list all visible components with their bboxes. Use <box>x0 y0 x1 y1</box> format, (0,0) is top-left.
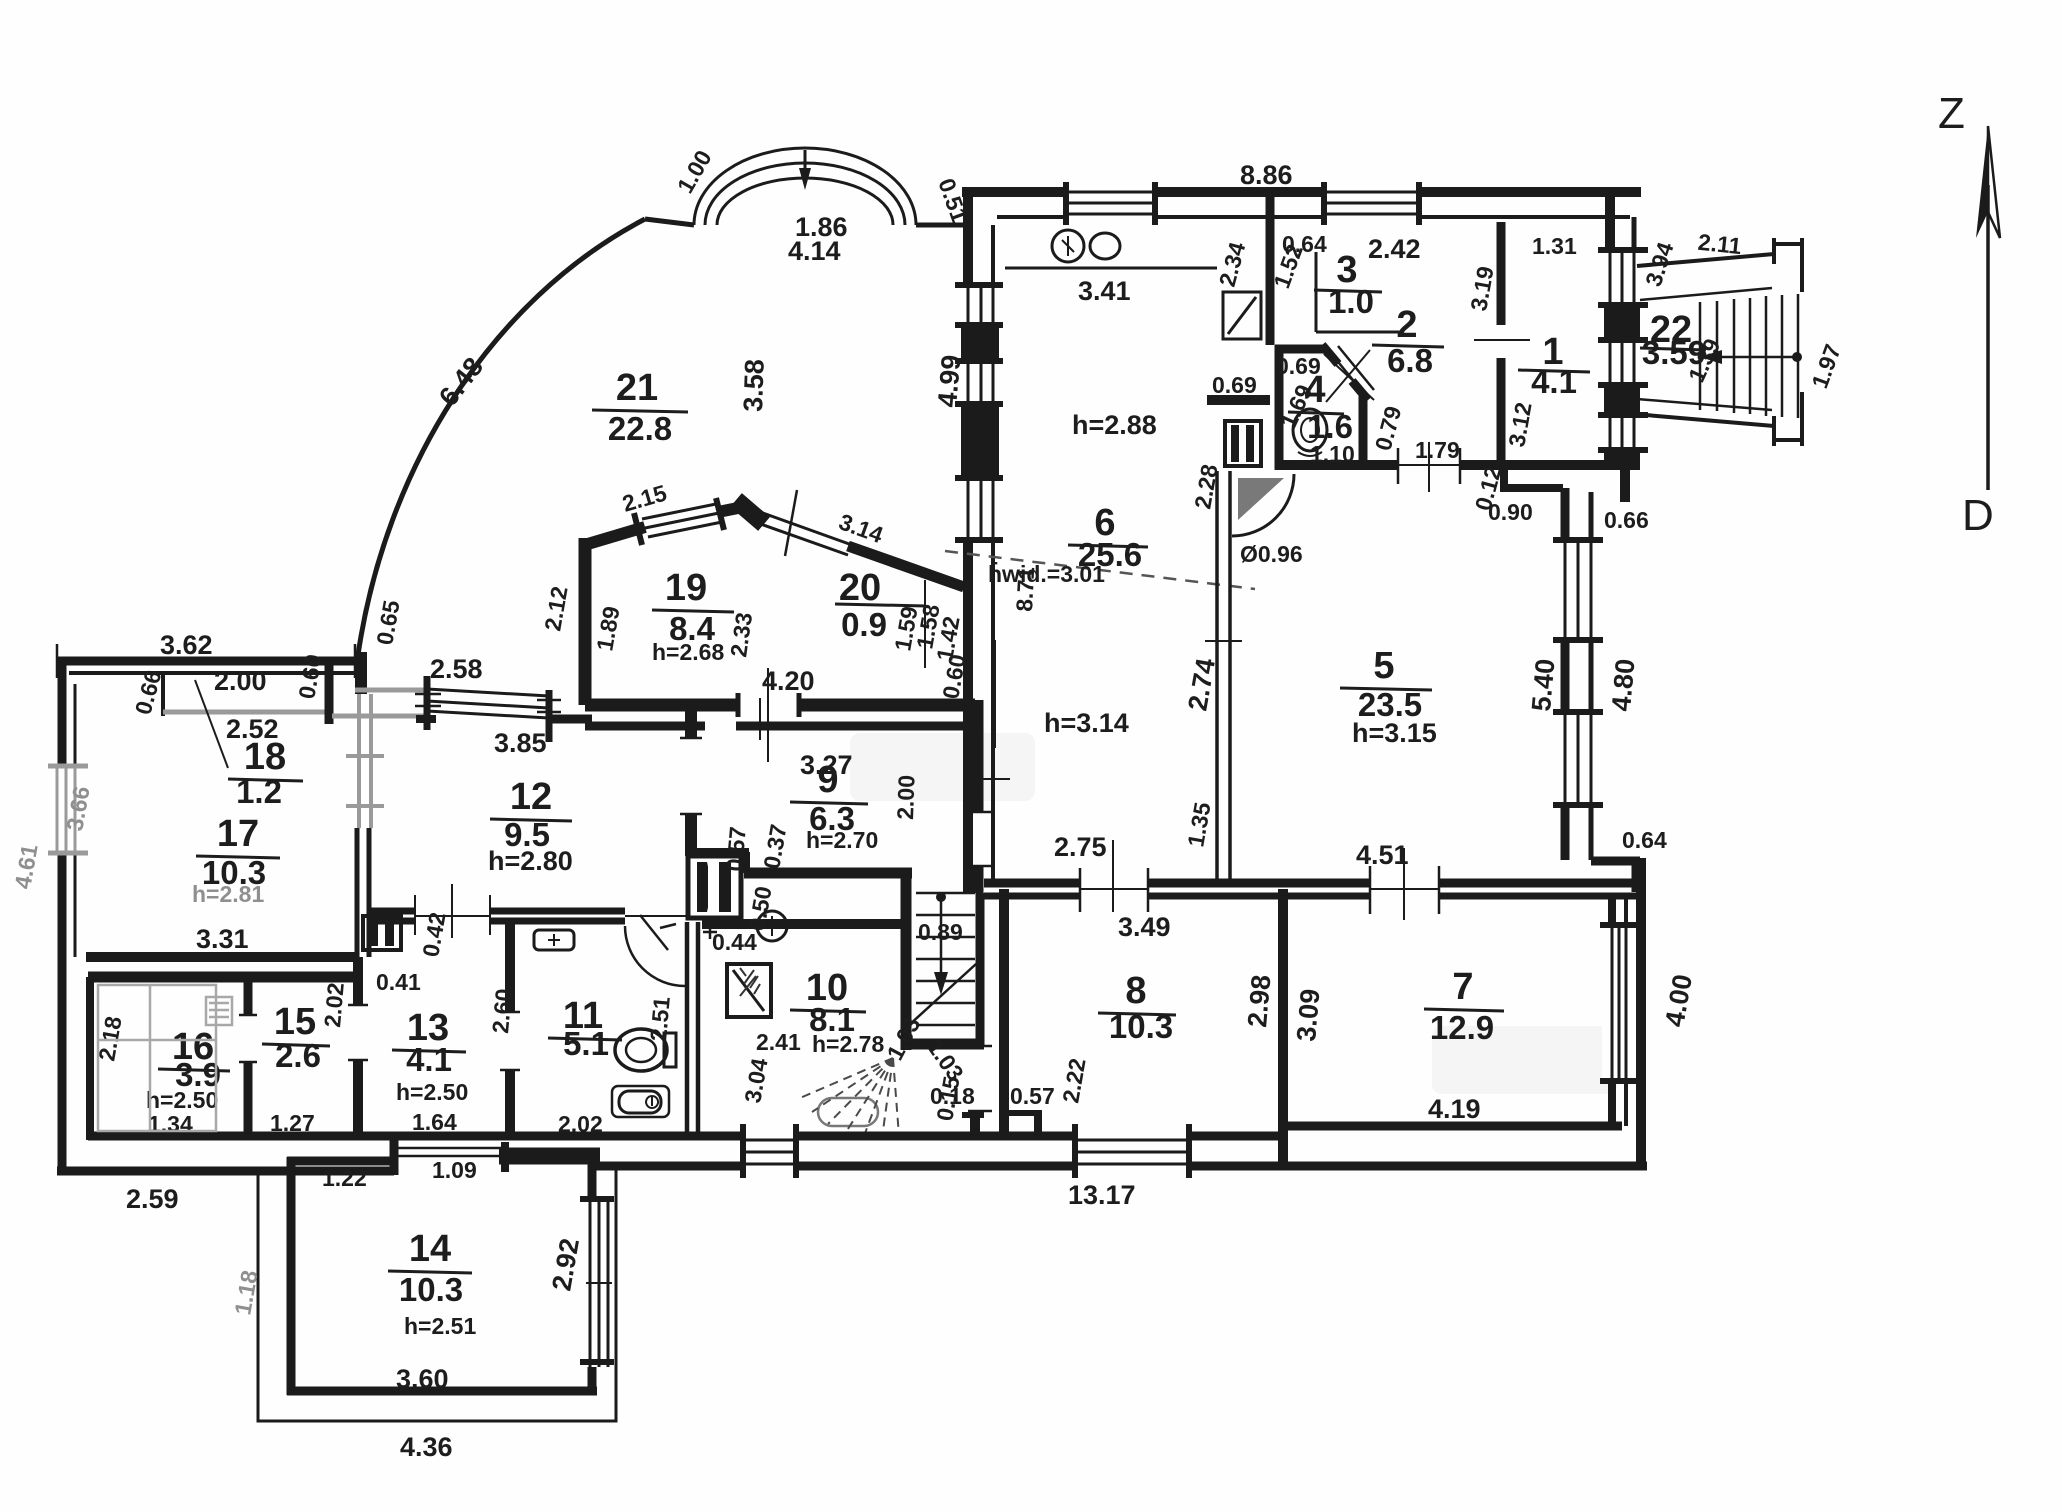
svg-text:0.44: 0.44 <box>712 929 757 955</box>
svg-text:h=2.51: h=2.51 <box>404 1313 476 1339</box>
svg-text:4.14: 4.14 <box>788 236 841 266</box>
svg-text:1.22: 1.22 <box>322 1165 367 1191</box>
svg-text:3.62: 3.62 <box>160 630 213 660</box>
svg-text:19: 19 <box>665 567 707 609</box>
svg-text:3.60: 3.60 <box>396 1364 449 1394</box>
svg-text:17: 17 <box>217 813 259 855</box>
svg-text:2.11: 2.11 <box>1697 229 1743 259</box>
svg-text:1.64: 1.64 <box>412 1109 457 1135</box>
svg-text:1.79: 1.79 <box>1415 437 1460 463</box>
svg-text:0.64: 0.64 <box>1622 827 1667 853</box>
svg-text:5.1: 5.1 <box>563 1025 609 1062</box>
svg-text:3.27: 3.27 <box>800 750 853 780</box>
svg-text:14: 14 <box>409 1228 451 1270</box>
svg-text:0.41: 0.41 <box>376 969 421 995</box>
svg-text:4.36: 4.36 <box>400 1432 453 1462</box>
svg-text:3.49: 3.49 <box>1118 912 1171 942</box>
svg-text:2.75: 2.75 <box>1054 832 1107 862</box>
svg-text:0.89: 0.89 <box>918 919 963 945</box>
svg-text:10.3: 10.3 <box>399 1271 463 1308</box>
svg-text:4.20: 4.20 <box>762 666 815 696</box>
svg-text:1.0: 1.0 <box>1328 283 1374 320</box>
svg-text:4.51: 4.51 <box>1356 840 1409 870</box>
svg-text:h=2.50: h=2.50 <box>146 1087 218 1113</box>
svg-text:0.66: 0.66 <box>1604 507 1649 533</box>
svg-text:3.09: 3.09 <box>1291 988 1325 1043</box>
svg-text:8: 8 <box>1125 970 1146 1012</box>
svg-text:2.41: 2.41 <box>756 1029 801 1055</box>
svg-text:7: 7 <box>1452 966 1473 1008</box>
svg-text:3.41: 3.41 <box>1078 276 1131 306</box>
svg-text:h=3.15: h=3.15 <box>1352 718 1437 748</box>
svg-text:2.00: 2.00 <box>214 666 267 696</box>
svg-text:3.58: 3.58 <box>738 359 770 413</box>
svg-text:3.31: 3.31 <box>196 924 249 954</box>
svg-text:5: 5 <box>1373 645 1394 687</box>
svg-text:4.19: 4.19 <box>1428 1094 1481 1124</box>
svg-text:2.60: 2.60 <box>487 988 517 1035</box>
svg-text:Ø0.96: Ø0.96 <box>1240 541 1303 567</box>
svg-text:1.31: 1.31 <box>1532 233 1577 259</box>
svg-text:2.98: 2.98 <box>1242 974 1276 1029</box>
svg-text:2.02: 2.02 <box>558 1111 603 1137</box>
svg-text:Z: Z <box>1938 89 1965 138</box>
svg-text:h=2.78: h=2.78 <box>812 1031 884 1057</box>
svg-text:h=2.80: h=2.80 <box>488 846 573 876</box>
svg-text:5.40: 5.40 <box>1526 658 1560 713</box>
svg-text:8.86: 8.86 <box>1240 160 1293 190</box>
svg-text:h=2.88: h=2.88 <box>1072 410 1157 440</box>
svg-text:12.9: 12.9 <box>1430 1009 1494 1046</box>
svg-text:4.1: 4.1 <box>1531 363 1577 400</box>
svg-text:2.42: 2.42 <box>1368 234 1421 264</box>
svg-text:h=2.81: h=2.81 <box>192 881 264 907</box>
svg-text:2.6: 2.6 <box>275 1037 321 1074</box>
svg-text:2: 2 <box>1396 304 1417 346</box>
svg-text:13.17: 13.17 <box>1068 1180 1136 1210</box>
svg-text:0.9: 0.9 <box>841 606 887 643</box>
svg-text:2.02: 2.02 <box>319 982 349 1029</box>
svg-text:2.59: 2.59 <box>126 1184 179 1214</box>
svg-text:8.71: 8.71 <box>1011 566 1039 612</box>
svg-text:0.69: 0.69 <box>1212 372 1257 398</box>
svg-text:h=2.50: h=2.50 <box>396 1079 468 1105</box>
svg-text:h=3.14: h=3.14 <box>1044 708 1129 738</box>
svg-text:21: 21 <box>616 367 658 409</box>
svg-text:0.57: 0.57 <box>721 826 751 873</box>
svg-text:4.99: 4.99 <box>932 354 966 409</box>
svg-text:20: 20 <box>839 567 881 609</box>
svg-text:1.10: 1.10 <box>1310 441 1355 467</box>
svg-text:2.52: 2.52 <box>226 714 279 744</box>
svg-text:0.69: 0.69 <box>1276 353 1321 379</box>
svg-text:h=2.68: h=2.68 <box>652 639 724 665</box>
svg-text:4.80: 4.80 <box>1606 658 1640 713</box>
svg-text:D: D <box>1962 491 1994 540</box>
svg-text:2.00: 2.00 <box>892 775 920 821</box>
svg-text:0.57: 0.57 <box>1010 1083 1055 1109</box>
svg-text:1.27: 1.27 <box>270 1110 315 1136</box>
svg-text:ḣwid.=3.01: ḣwid.=3.01 <box>988 561 1105 587</box>
svg-text:1.34: 1.34 <box>148 1111 193 1137</box>
svg-text:1.09: 1.09 <box>432 1157 477 1183</box>
svg-text:12: 12 <box>510 776 552 818</box>
svg-text:3.85: 3.85 <box>494 728 547 758</box>
svg-text:2.51: 2.51 <box>645 995 675 1042</box>
svg-text:h=2.70: h=2.70 <box>806 827 878 853</box>
svg-text:4.1: 4.1 <box>406 1041 452 1078</box>
svg-text:2.58: 2.58 <box>430 654 483 684</box>
svg-text:22.8: 22.8 <box>608 410 672 447</box>
